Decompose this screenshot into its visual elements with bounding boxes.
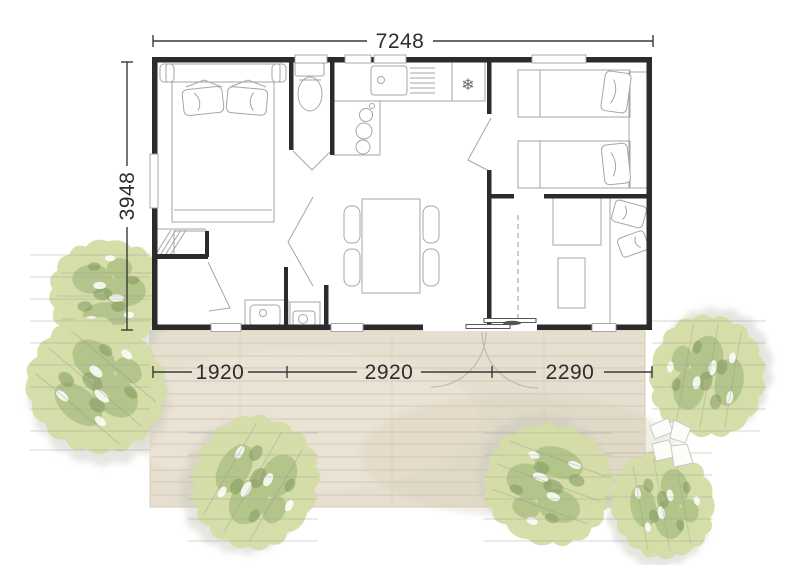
pillow xyxy=(226,86,268,115)
dimension-label-width: 7248 xyxy=(376,30,425,53)
dimension-label-segment-3: 2290 xyxy=(546,361,595,384)
pillow xyxy=(601,143,631,185)
window-top-3 xyxy=(374,55,406,63)
pillow xyxy=(600,70,631,113)
wall-bathroom-return xyxy=(205,231,209,257)
wall-twin-divider-a xyxy=(489,194,514,199)
window-bottom-1 xyxy=(211,324,241,332)
window-bottom-3 xyxy=(592,324,616,332)
window-top-2 xyxy=(345,55,371,63)
wall-bathroom-right xyxy=(324,285,329,327)
wall-twin-divider-b xyxy=(544,194,648,199)
floorplan: ❄ xyxy=(150,55,652,332)
wall-right xyxy=(647,57,653,330)
window-left xyxy=(150,154,158,208)
dimension-label-segment-1: 1920 xyxy=(196,361,245,384)
floorplan-canvas: ❄ 7248 3948 1920 2920 2290 xyxy=(0,0,800,565)
dimension-label-segment-2: 2920 xyxy=(365,361,414,384)
pillow xyxy=(182,86,224,116)
wall-bathroom-top xyxy=(152,254,208,259)
wall-basin-nook xyxy=(284,267,288,327)
window-top-1 xyxy=(295,55,327,63)
window-bottom-2 xyxy=(331,324,363,332)
fridge-snowflake-icon: ❄ xyxy=(461,77,474,94)
floorplan-page: ❄ 7248 3948 1920 2920 2290 xyxy=(0,0,800,565)
kitchen-sink xyxy=(371,66,407,95)
window-top-4 xyxy=(532,55,586,63)
wall-living-right-upper xyxy=(487,62,492,114)
wall-wc-left xyxy=(289,62,294,150)
wall-living-right-lower xyxy=(487,170,492,326)
dimension-label-height: 3948 xyxy=(116,172,139,221)
door-handle xyxy=(503,321,521,325)
wall-kitchen-left xyxy=(330,62,335,155)
